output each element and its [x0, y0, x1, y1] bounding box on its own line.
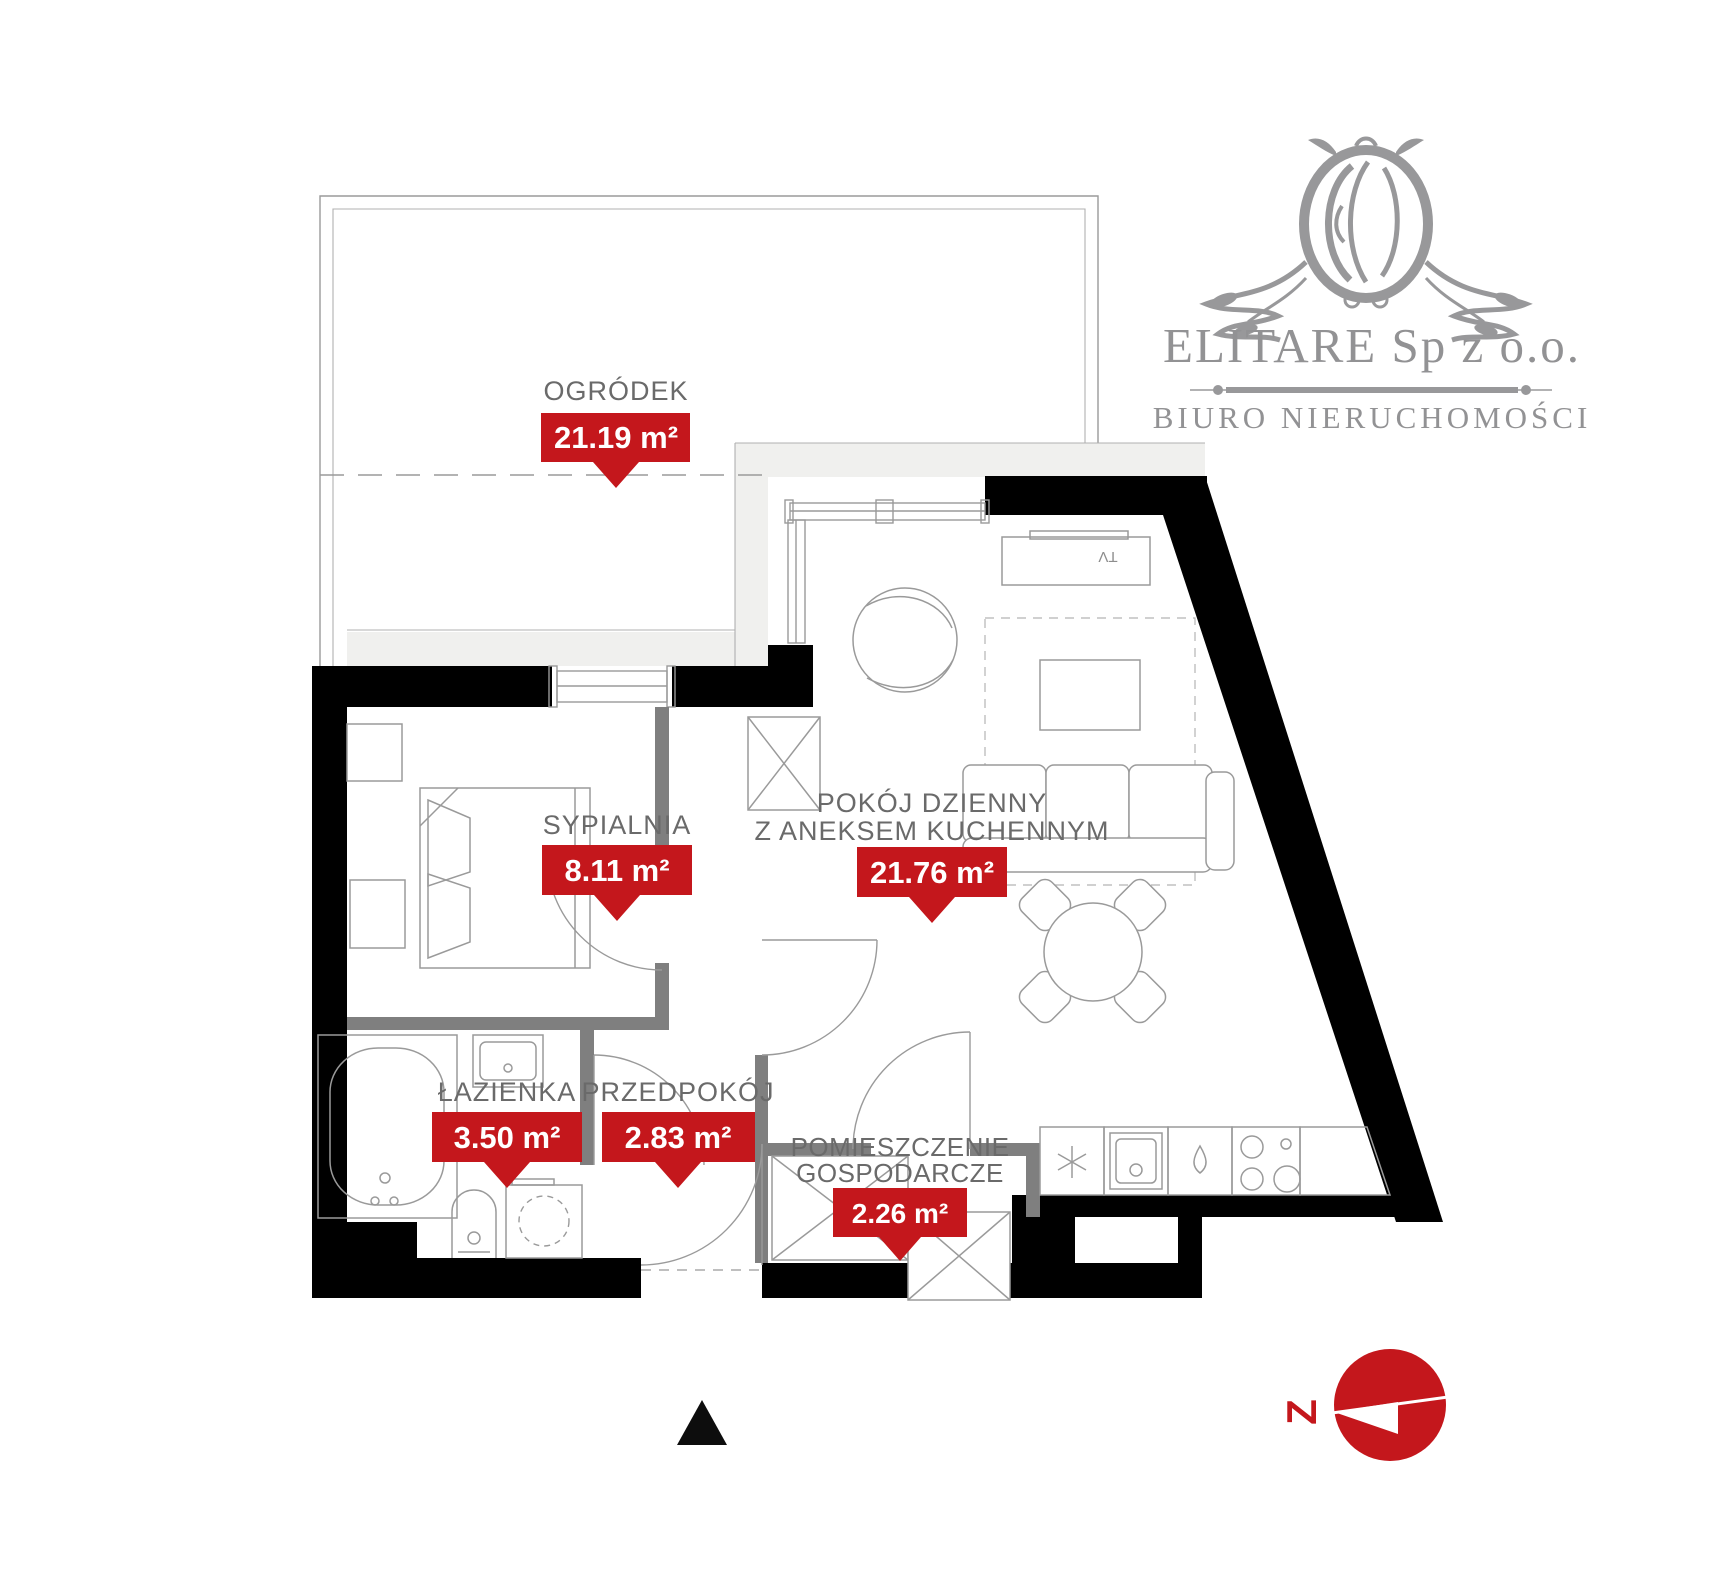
area-value: 8.11 m² [564, 853, 669, 888]
wall-recess [1075, 1217, 1178, 1263]
company-logo: ELITARE Sp z o.o. BIURO NIERUCHOMOŚCI [1153, 139, 1592, 436]
area-value: 2.83 m² [625, 1120, 732, 1155]
company-name: ELITARE Sp z o.o. [1163, 318, 1581, 373]
logo-divider [1190, 385, 1552, 395]
room-label-ogrodek: OGRÓDEK 21.19 m² [541, 375, 690, 488]
lion-ornament-icon [1206, 139, 1526, 341]
room-name: ŁAZIENKA [438, 1077, 577, 1107]
bedroom-window-icon [549, 666, 675, 707]
room-name: OGRÓDEK [543, 375, 688, 406]
company-subtitle: BIURO NIERUCHOMOŚCI [1153, 400, 1592, 435]
area-value: 3.50 m² [454, 1120, 561, 1155]
compass-letter: Z [1278, 1399, 1325, 1425]
room-name-line2: GOSPODARCZE [796, 1158, 1004, 1188]
terrace-strip-side [735, 477, 768, 666]
terrace-strip-top [735, 443, 1205, 477]
coffee-table-icon [1040, 660, 1140, 730]
room-name: PRZEDPOKÓJ [581, 1076, 774, 1107]
area-value: 21.76 m² [870, 855, 994, 890]
terrace-strip [347, 632, 768, 666]
area-value: 21.19 m² [554, 420, 678, 455]
area-value: 2.26 m² [852, 1198, 949, 1229]
living-window-row-icon [785, 500, 989, 523]
room-name: SYPIALNIA [543, 810, 692, 840]
north-arrow-icon [677, 1400, 727, 1445]
tv-label: TV [1098, 548, 1117, 565]
compass-icon: Z [1278, 1349, 1448, 1461]
room-name-line2: Z ANEKSEM KUCHENNYM [754, 816, 1109, 846]
room-name: POKÓJ DZIENNY [817, 787, 1048, 818]
